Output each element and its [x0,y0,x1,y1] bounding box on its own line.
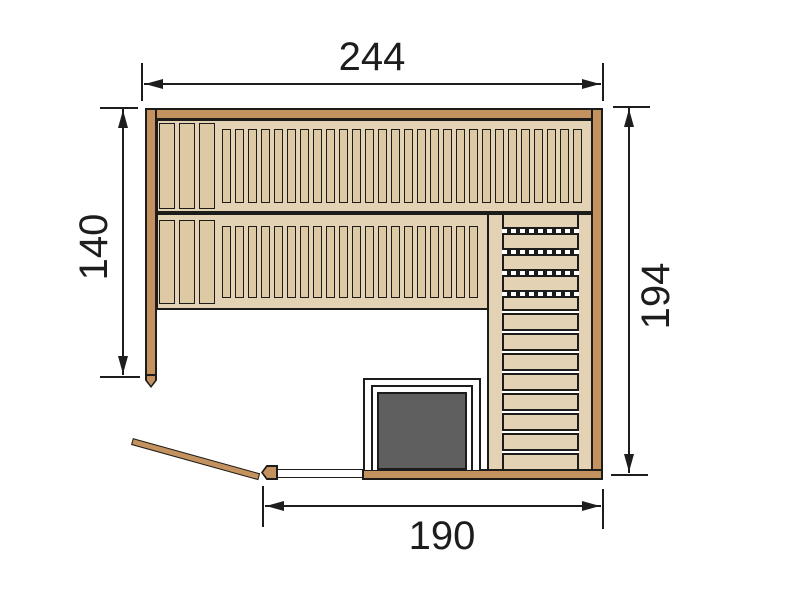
sauna-floor-plan-diagram: 244 140 194 190 [0,0,800,600]
dim-bottom-label: 190 [409,516,476,556]
dim-bottom-line [265,505,601,507]
dim-bottom-arrow-left [266,501,284,511]
dim-bottom-tick-left [262,486,264,527]
dim-bottom-arrow-right [582,501,600,511]
dim-bottom-tick-right [602,489,604,529]
dimension-bottom: 190 [0,0,800,600]
